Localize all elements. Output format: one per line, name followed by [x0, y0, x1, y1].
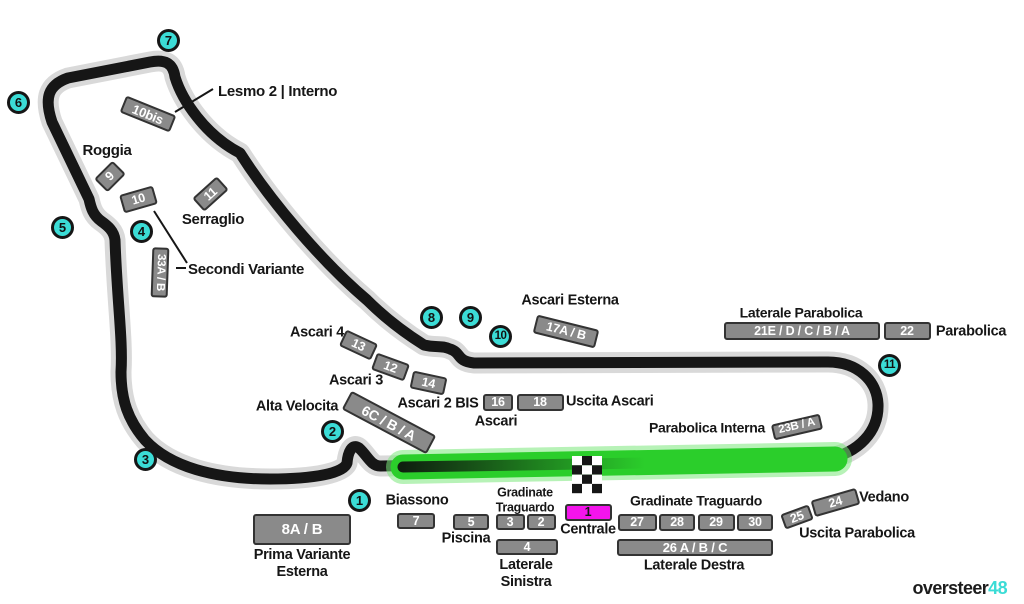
track-outline	[48, 61, 878, 479]
flag-cell	[572, 475, 582, 484]
flag-cell	[572, 484, 582, 493]
oversteer48-logo: oversteer48	[913, 578, 1007, 599]
track-svg	[0, 0, 1024, 604]
flag-cell	[592, 475, 602, 484]
start-finish-track-fade	[403, 463, 645, 467]
flag-cell	[592, 484, 602, 493]
flag-cell	[592, 465, 602, 474]
flag-cell	[582, 484, 592, 493]
monza-circuit-seating-map: 10bis9101133A / B1312146C / B / A17A / B…	[0, 0, 1024, 604]
start-finish-checkered-flag	[572, 456, 602, 493]
flag-cell	[582, 456, 592, 465]
flag-cell	[572, 465, 582, 474]
logo-accent-text: 48	[988, 578, 1007, 598]
flag-cell	[592, 456, 602, 465]
leader-stand10-to-secondi-variante	[154, 211, 187, 263]
flag-cell	[572, 456, 582, 465]
flag-cell	[582, 475, 592, 484]
flag-cell	[582, 465, 592, 474]
logo-text: oversteer	[913, 578, 989, 598]
track-outline-halo	[48, 61, 878, 479]
